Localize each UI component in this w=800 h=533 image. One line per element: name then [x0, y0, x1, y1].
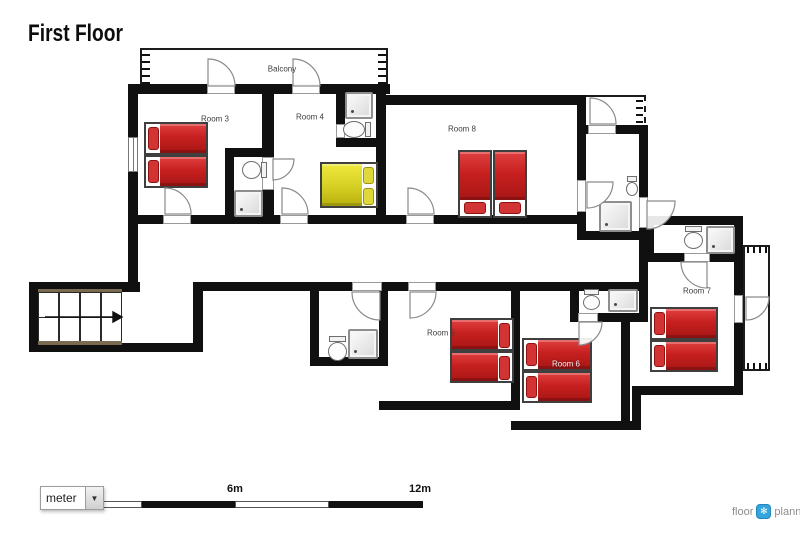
bed-pillow — [526, 376, 537, 398]
railing-tick — [142, 68, 150, 70]
page-title: First Floor — [28, 20, 123, 48]
railing-tick — [636, 121, 643, 123]
railing-tick — [378, 75, 386, 77]
floorplan-canvas: First Floor 6m 12m meter ▼ floor ✻ plann… — [0, 0, 800, 533]
room7-label: Room 7 — [683, 287, 711, 296]
railing-tick — [747, 247, 749, 253]
balcony-top — [140, 48, 388, 88]
door-threshold — [406, 215, 434, 224]
shower — [599, 201, 632, 232]
wall-segment — [308, 215, 406, 224]
railing-tick — [378, 54, 386, 56]
unit-dropdown-value[interactable]: meter — [40, 486, 86, 510]
wall-segment — [29, 282, 38, 352]
door — [352, 292, 380, 320]
bed-pillow — [526, 343, 537, 366]
door — [410, 292, 436, 318]
railing-tick — [753, 363, 755, 369]
door — [408, 188, 434, 214]
wall-segment — [310, 282, 319, 366]
shower — [234, 190, 263, 217]
bed — [450, 351, 514, 383]
scale-segment — [100, 501, 142, 508]
wall-segment — [598, 313, 648, 322]
bed — [144, 155, 208, 188]
wall-segment — [379, 282, 388, 366]
staircase — [38, 289, 122, 345]
wall-segment — [225, 148, 262, 157]
bed-pillow — [654, 312, 665, 335]
bed — [650, 307, 718, 340]
stair-step-line — [38, 317, 122, 318]
floorplanner-logo-icon: ✻ — [756, 504, 771, 519]
door-threshold — [292, 84, 320, 94]
scale-end-label: 12m — [409, 483, 431, 495]
wall-segment — [577, 125, 588, 134]
wall-segment — [640, 386, 743, 395]
door-threshold — [588, 125, 616, 134]
room5-label: Room 5 — [427, 329, 455, 338]
bed-pillow — [654, 345, 665, 367]
window — [128, 137, 138, 172]
door — [282, 188, 308, 214]
shower — [348, 329, 378, 359]
wall-segment — [645, 216, 743, 225]
wall-segment — [645, 225, 654, 253]
chevron-down-icon[interactable]: ▼ — [86, 486, 104, 510]
railing-tick — [378, 82, 386, 84]
bed-pillow — [499, 356, 510, 380]
door-threshold — [352, 282, 382, 291]
bed-pillow — [148, 160, 159, 183]
scale-mid-label: 6m — [227, 483, 243, 495]
wall-segment — [616, 125, 648, 134]
bed — [522, 371, 592, 403]
door-threshold — [734, 295, 743, 323]
railing-tick — [378, 68, 386, 70]
wall-segment — [378, 95, 586, 105]
room4-label: Room 4 — [296, 113, 324, 122]
railing-tick — [378, 61, 386, 63]
door — [681, 262, 707, 288]
toilet — [583, 289, 600, 310]
wall-segment — [570, 291, 579, 313]
door — [165, 188, 191, 214]
wall-segment — [621, 320, 630, 430]
wall-segment — [734, 225, 743, 295]
door-threshold — [408, 282, 436, 291]
wall-segment — [632, 386, 641, 430]
bed-pillow — [464, 202, 486, 214]
railing-tick — [142, 75, 150, 77]
railing-tick — [753, 247, 755, 253]
railing-tick — [759, 363, 761, 369]
bed-pillow — [499, 323, 510, 348]
wall-segment — [639, 134, 648, 197]
scale-segment — [329, 501, 423, 508]
bed — [458, 150, 492, 218]
bed — [493, 150, 527, 218]
toilet — [242, 161, 267, 179]
wall-segment — [128, 84, 138, 137]
railing-tick — [142, 61, 150, 63]
scale-segment — [142, 501, 235, 508]
room3-label: Room 3 — [201, 115, 229, 124]
toilet — [684, 226, 703, 249]
bed-pillow — [148, 127, 159, 150]
wall-segment — [734, 323, 743, 395]
wall-segment — [197, 282, 352, 291]
railing-tick — [142, 54, 150, 56]
wall-segment — [193, 282, 203, 352]
wall-segment — [336, 84, 345, 124]
logo-text-planner: planner — [774, 506, 800, 518]
railing-tick — [636, 100, 643, 102]
wall-segment — [570, 313, 578, 322]
balcony-right — [743, 245, 770, 371]
room6-label: Room 6 — [552, 360, 580, 369]
wall-segment — [577, 95, 586, 125]
unit-dropdown[interactable]: meter ▼ — [40, 486, 104, 510]
door-threshold — [578, 313, 598, 322]
railing-tick — [765, 247, 767, 253]
door-threshold — [163, 215, 191, 224]
door-threshold — [577, 180, 586, 212]
shower — [345, 92, 373, 119]
wall-segment — [225, 148, 234, 224]
bed — [144, 122, 208, 155]
toilet — [626, 176, 638, 196]
wall-segment — [262, 84, 274, 157]
bed — [650, 340, 718, 372]
railing-tick — [747, 363, 749, 369]
bed — [320, 162, 378, 208]
wall-segment — [128, 172, 138, 282]
shower — [608, 289, 638, 312]
railing-tick — [142, 82, 150, 84]
shower — [706, 226, 735, 254]
door-threshold — [684, 253, 710, 262]
logo-text-floor: floor — [732, 506, 753, 518]
wall-segment — [336, 138, 380, 147]
wall-segment — [577, 231, 648, 240]
wall-segment — [639, 291, 648, 313]
door — [273, 159, 294, 180]
balcony-label: Balcony — [268, 65, 296, 74]
wall-segment — [379, 401, 520, 410]
bed-pillow — [363, 188, 374, 205]
scale-segment — [235, 501, 329, 508]
door-arcs-layer — [0, 0, 800, 533]
toilet — [328, 336, 347, 361]
door-threshold — [639, 197, 648, 228]
railing-tick — [759, 247, 761, 253]
door-threshold — [280, 215, 308, 224]
railing-tick — [636, 107, 643, 109]
floorplanner-logo[interactable]: floor ✻ planner — [732, 504, 800, 519]
wall-segment — [648, 253, 684, 262]
bed — [450, 318, 514, 351]
stair-step-line — [38, 341, 122, 345]
bed-pillow — [499, 202, 521, 214]
toilet — [343, 121, 371, 138]
wall-segment — [128, 215, 163, 224]
wall-segment — [128, 84, 207, 94]
railing-tick — [765, 363, 767, 369]
bed-pillow — [363, 167, 374, 184]
room8-label: Room 8 — [448, 125, 476, 134]
railing-tick — [636, 114, 643, 116]
door-threshold — [207, 84, 235, 94]
